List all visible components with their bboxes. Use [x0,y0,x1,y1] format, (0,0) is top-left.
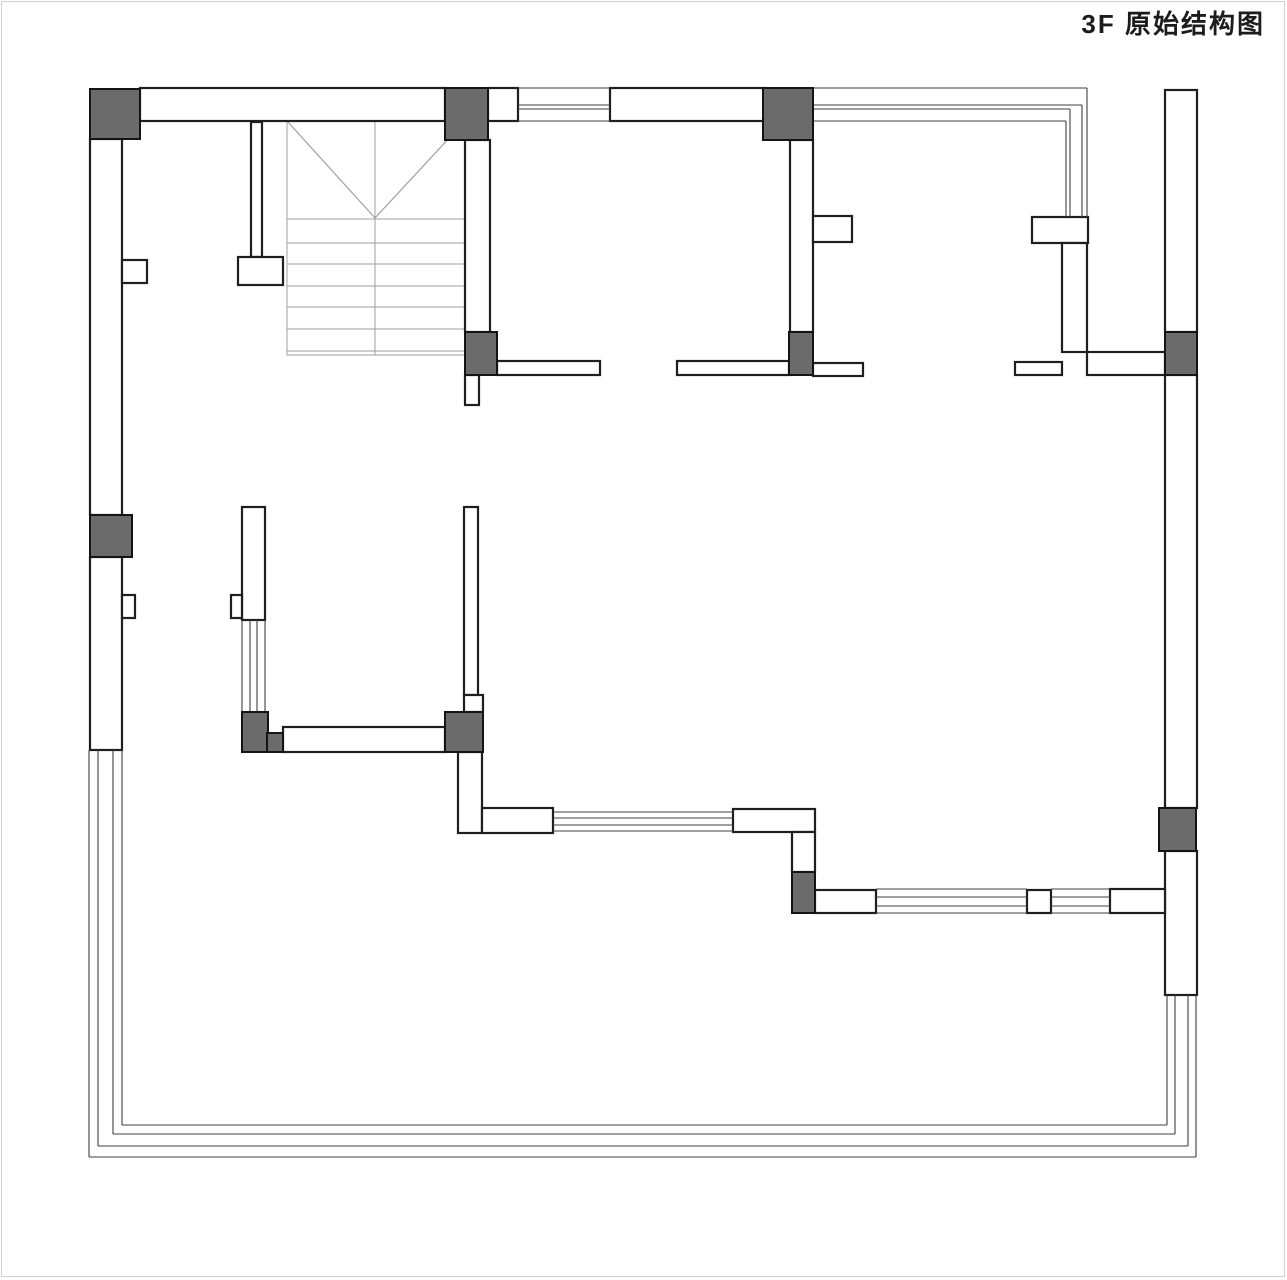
floorplan-svg [0,0,1287,1280]
wall-segment [482,808,553,833]
structural-column [445,88,488,140]
wall-segment [488,88,518,121]
structural-column [792,872,815,913]
wall-segment [813,216,852,242]
structural-column [90,515,132,557]
wall-segment [1110,889,1165,913]
wall-segment [251,122,262,257]
wall-segment [792,832,815,872]
wall-segment [283,727,445,752]
wall-segment [242,507,265,620]
wall-segment [610,88,765,121]
wall-segment [1032,217,1088,243]
wall-segment [1165,851,1197,995]
wall-segment [140,88,445,121]
floorplan-page: 3F 原始结构图 [0,0,1287,1280]
wall-segment [1015,362,1062,375]
wall-segment [1087,352,1165,375]
wall-segment [1165,375,1197,808]
wall-segment [1062,243,1087,352]
wall-segment [464,695,483,712]
wall-segment [231,595,242,618]
wall-segment [464,507,478,695]
stair-diagonal-line [287,121,375,218]
stairs-layer [287,121,465,355]
wall-segment [465,140,490,332]
wall-segment [1027,890,1051,913]
structural-column [242,712,268,752]
wall-segment [122,260,147,283]
wall-segment [90,139,122,515]
wall-segment [733,809,815,832]
structural-column [1159,808,1196,851]
wall-segment [677,361,789,375]
wall-segment [122,595,135,618]
structural-column [1165,332,1197,375]
stair-boundary [287,121,465,355]
wall-segment [497,361,600,375]
structural-column [465,332,497,375]
drawing-title: 3F 原始结构图 [1081,4,1265,41]
structural-column [445,712,483,752]
wall-segment [458,752,482,833]
structural-column [90,89,140,139]
structural-column [763,88,813,140]
wall-segment [813,363,863,376]
wall-segment [1165,90,1197,332]
wall-segment [790,140,813,332]
wall-segment [815,890,876,913]
structural-column [267,733,283,752]
walls-layer [90,88,1197,995]
structural-column [789,332,813,375]
wall-segment [90,557,122,750]
wall-segment [465,375,479,405]
wall-segment [238,257,283,285]
